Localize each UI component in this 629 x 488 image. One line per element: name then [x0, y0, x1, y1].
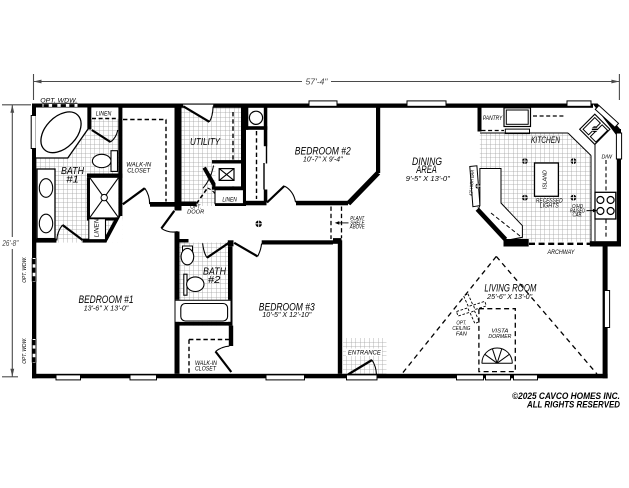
svg-text:DOOR: DOOR — [187, 209, 204, 215]
svg-text:PANTRY: PANTRY — [483, 116, 503, 122]
svg-text:FAN: FAN — [456, 331, 467, 337]
svg-text:CLOSET: CLOSET — [195, 365, 217, 372]
svg-text:ISLAND: ISLAND — [543, 170, 549, 189]
svg-text:OPT. WDW.: OPT. WDW. — [22, 338, 28, 364]
svg-text:10'-7" X 9'-4": 10'-7" X 9'-4" — [303, 156, 343, 163]
svg-text:BEDROOM #1: BEDROOM #1 — [79, 294, 134, 306]
svg-text:ABOVE: ABOVE — [349, 225, 365, 231]
svg-text:57'-4": 57'-4" — [306, 76, 329, 86]
svg-text:DORMER: DORMER — [488, 334, 511, 340]
svg-text:LINEN: LINEN — [222, 197, 237, 203]
svg-text:13'-6" X 13'-0": 13'-6" X 13'-0" — [84, 306, 129, 313]
svg-text:10'-5" X 12'-10": 10'-5" X 12'-10" — [262, 312, 312, 319]
svg-text:LINEN: LINEN — [96, 111, 112, 117]
svg-text:D/W: D/W — [601, 154, 612, 160]
svg-text:CLOSET: CLOSET — [127, 168, 151, 175]
svg-text:ARCHWAY: ARCHWAY — [547, 249, 576, 256]
svg-text:#2: #2 — [208, 274, 221, 286]
svg-text:LINEN: LINEN — [95, 218, 101, 237]
svg-text:UTILITY: UTILITY — [190, 136, 221, 148]
svg-text:26'-8": 26'-8" — [2, 238, 19, 248]
svg-text:KITCHEN: KITCHEN — [531, 135, 560, 146]
svg-text:9'-5" X 13'-0": 9'-5" X 13'-0" — [406, 176, 451, 183]
svg-text:CAB.: CAB. — [573, 213, 583, 219]
svg-text:ENTRANCE: ENTRANCE — [348, 350, 382, 357]
svg-text:#1: #1 — [66, 174, 79, 186]
svg-text:OPT. WDW.: OPT. WDW. — [40, 99, 77, 105]
svg-text:25'-6" X 13'-0": 25'-6" X 13'-0" — [486, 294, 533, 301]
svg-text:AREA: AREA — [416, 164, 437, 176]
svg-text:OPT. WDW.: OPT. WDW. — [22, 257, 28, 283]
svg-text:LIGHTS: LIGHTS — [540, 204, 559, 210]
svg-text:ALL RIGHTS RESERVED: ALL RIGHTS RESERVED — [526, 399, 620, 410]
svg-text:LIVING ROOM: LIVING ROOM — [484, 282, 537, 294]
